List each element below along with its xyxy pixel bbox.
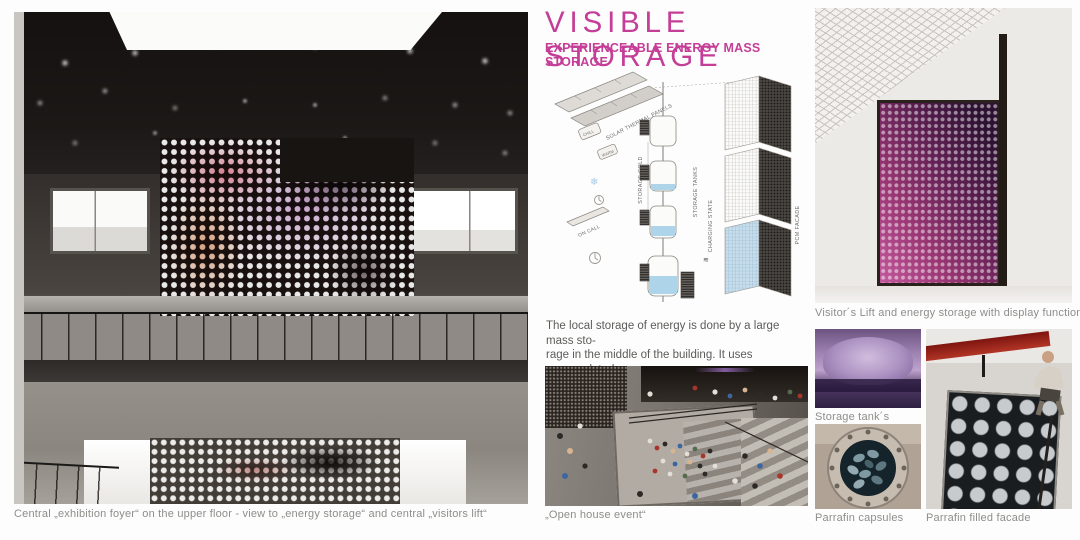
dot-wall-step-cover	[280, 138, 414, 182]
lower-opening-right	[400, 440, 466, 504]
label-pcm-facade: PCM FACADE	[795, 205, 801, 244]
crowd-overlay	[545, 366, 808, 506]
caption-open-house: „Open house event“	[545, 509, 646, 521]
guide-line	[651, 82, 735, 88]
crane-hook	[982, 355, 985, 377]
tank-body	[823, 337, 913, 385]
dark-post	[999, 34, 1007, 292]
skylight	[92, 12, 442, 50]
display-pixel-panel	[877, 100, 1001, 286]
people-dots	[557, 386, 802, 499]
lower-railing	[14, 461, 119, 504]
balcony-fascia	[14, 360, 528, 382]
parrafin-facade-photo	[926, 329, 1072, 509]
left-gallery-window	[50, 188, 150, 254]
visitors-lift-photo	[815, 8, 1072, 303]
capsules-porthole-icon	[815, 424, 921, 509]
caption-exhibition-foyer: Central „exhibition foyer“ on the upper …	[14, 508, 487, 520]
warm-box: WARM	[597, 144, 618, 160]
parrafin-capsules-photo	[815, 424, 921, 509]
snowflake-icon: ❄	[590, 177, 598, 188]
right-gallery-window	[410, 188, 518, 254]
left-wall-edge	[14, 12, 24, 504]
tank-band	[815, 379, 921, 392]
label-on-call: ON CALL	[577, 224, 601, 239]
energy-storage-diagram: SOLAR THERMAL PANELS CHILL WARM ❄ ON CAL…	[545, 60, 808, 314]
open-house-photo	[545, 366, 808, 506]
presentation-board: Central „exhibition foyer“ on the upper …	[0, 0, 1080, 540]
caption-parrafin-facade: Parrafin filled facade	[926, 512, 1031, 524]
label-storage-tanks: STORAGE TANKS	[693, 167, 699, 217]
label-charging-state: CHARGING STATE	[708, 200, 714, 253]
body-text-line: The local storage of energy is done by a…	[546, 319, 808, 348]
chill-box: CHILL	[578, 122, 602, 140]
floor	[815, 286, 1072, 303]
upper-railing	[14, 312, 528, 362]
worker-figure	[1018, 347, 1072, 417]
storage-tank-photo	[815, 329, 921, 408]
on-call-plank	[567, 207, 609, 226]
caption-storage-tank: Storage tank´s	[815, 411, 889, 423]
caption-visitors-lift: Visitor´s Lift and energy storage with d…	[815, 307, 1080, 319]
exhibition-foyer-photo	[14, 12, 528, 504]
wave-icon: ≋	[703, 257, 709, 264]
caption-parrafin-capsules: Parrafin capsules	[815, 512, 903, 524]
clock-icon	[595, 196, 604, 205]
lower-dot-wall	[150, 438, 400, 504]
clock-icon-2	[590, 253, 601, 264]
pcm-building-icon	[725, 76, 791, 296]
